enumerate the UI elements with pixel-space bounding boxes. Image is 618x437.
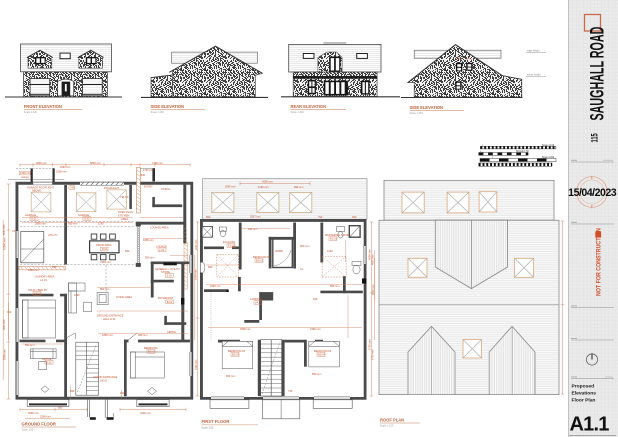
svg-text:990: 990	[7, 310, 12, 314]
svg-text:VELUX: VELUX	[120, 195, 129, 199]
svg-text:LAUNDRY AREA: LAUNDRY AREA	[35, 275, 55, 279]
svg-text:S.01: S.01	[167, 273, 173, 277]
svg-text:990 mm: 990 mm	[294, 185, 303, 189]
svg-text:1790 mm: 1790 mm	[143, 169, 153, 172]
svg-text:4390 mm: 4390 mm	[100, 260, 111, 264]
svg-text:B.01: B.01	[167, 300, 173, 304]
svg-text:8290 mm: 8290 mm	[3, 349, 7, 360]
svg-text:BD.02: BD.02	[256, 259, 264, 263]
svg-text:890 mm: 890 mm	[25, 343, 34, 347]
svg-text:ABOVE: ABOVE	[32, 189, 41, 193]
svg-text:GROUND ENTRANCE: GROUND ENTRANCE	[97, 314, 124, 318]
svg-text:990 mm: 990 mm	[145, 256, 154, 260]
svg-text:2867 mm: 2867 mm	[250, 215, 261, 219]
svg-text:eaves height: eaves height	[527, 74, 541, 77]
svg-text:GE.01: GE.01	[100, 379, 108, 383]
svg-text:3190 mm: 3190 mm	[140, 411, 151, 415]
svg-text:990 mm: 990 mm	[248, 227, 257, 231]
svg-text:Scale 1:100: Scale 1:100	[24, 111, 38, 114]
svg-text:UT: UT	[12, 229, 16, 233]
svg-text:6790 mm: 6790 mm	[372, 350, 375, 360]
svg-text:790: 790	[318, 215, 323, 219]
svg-text:L.01: L.01	[159, 248, 165, 252]
svg-text:BEDROOM 04: BEDROOM 04	[314, 349, 332, 353]
svg-text:4590 mm: 4590 mm	[262, 180, 273, 184]
svg-text:Floor Plan: Floor Plan	[572, 398, 596, 404]
svg-text:ES.01: ES.01	[330, 237, 338, 241]
svg-text:A1.1: A1.1	[570, 414, 610, 436]
svg-text:2290 mm: 2290 mm	[195, 240, 198, 250]
svg-text:890: 890	[206, 215, 211, 219]
svg-text:890: 890	[70, 389, 75, 393]
svg-text:BEDROOM 02: BEDROOM 02	[253, 255, 271, 259]
svg-text:3190 mm: 3190 mm	[195, 360, 198, 370]
svg-text:2090 mm: 2090 mm	[56, 170, 67, 174]
svg-text:BD.04: BD.04	[318, 353, 326, 357]
svg-text:NOT FOR CONSTRUCTION: NOT FOR CONSTRUCTION	[595, 228, 603, 296]
svg-text:SIDE ELEVATION: SIDE ELEVATION	[410, 105, 444, 110]
svg-text:DINING AREA: DINING AREA	[96, 244, 112, 247]
svg-text:1890 mm: 1890 mm	[28, 268, 39, 272]
svg-text:GROUND FLOOR: GROUND FLOOR	[22, 421, 56, 426]
svg-text:GARAGE: GARAGE	[78, 213, 89, 217]
svg-text:GRAND ENTRANCE: GRAND ENTRANCE	[93, 375, 118, 379]
svg-text:HALL H.01: HALL H.01	[103, 317, 116, 321]
svg-text:WARD: WARD	[275, 249, 283, 253]
svg-text:15/04/2023: 15/04/2023	[568, 187, 617, 199]
svg-text:1190: 1190	[74, 293, 80, 297]
svg-text:4790 mm: 4790 mm	[152, 161, 163, 165]
svg-text:990: 990	[52, 265, 57, 269]
svg-text:5890 mm: 5890 mm	[90, 161, 101, 165]
svg-text:790: 790	[288, 389, 293, 393]
svg-text:Scale 1:100: Scale 1:100	[380, 425, 394, 428]
svg-text:MASTER EN-SUITE: MASTER EN-SUITE	[325, 233, 349, 237]
svg-text:SAUGHALL ROAD: SAUGHALL ROAD	[587, 27, 608, 121]
svg-text:690: 690	[313, 297, 318, 301]
svg-text:3890 mm: 3890 mm	[36, 161, 47, 165]
svg-text:LOUNGE AREA: LOUNGE AREA	[150, 226, 169, 230]
svg-text:LA.01: LA.01	[255, 301, 262, 305]
svg-text:EN-SUITE: EN-SUITE	[223, 240, 235, 244]
svg-text:ridge height: ridge height	[527, 50, 540, 53]
svg-text:115: 115	[589, 133, 600, 143]
svg-text:SN.01: SN.01	[34, 292, 42, 296]
svg-text:LA.01: LA.01	[40, 278, 47, 282]
svg-text:990: 990	[352, 215, 357, 219]
svg-text:Scale 1:50: Scale 1:50	[22, 429, 34, 432]
svg-text:Scale 1:100: Scale 1:100	[410, 112, 424, 115]
svg-text:6390 mm: 6390 mm	[194, 269, 198, 280]
svg-text:OPEN PLAN: OPEN PLAN	[118, 210, 133, 214]
svg-text:1090 mm: 1090 mm	[20, 171, 31, 175]
svg-text:UTILITY: UTILITY	[48, 233, 58, 237]
svg-text:BD.03: BD.03	[232, 353, 240, 357]
svg-text:LANDING: LANDING	[250, 297, 262, 301]
svg-text:KITCHEN: KITCHEN	[118, 214, 130, 218]
svg-text:D.01: D.01	[102, 248, 108, 251]
svg-text:990 mm: 990 mm	[300, 244, 309, 248]
svg-text:990 mm: 990 mm	[226, 374, 235, 378]
svg-text:1190: 1190	[327, 249, 333, 253]
svg-text:990: 990	[120, 391, 125, 395]
svg-text:ROOFLIGHT: ROOFLIGHT	[104, 186, 120, 190]
svg-text:BD.01: BD.01	[148, 350, 156, 354]
svg-text:2890 mm: 2890 mm	[3, 320, 6, 330]
svg-text:2090 mm: 2090 mm	[225, 186, 235, 189]
svg-text:BEDROOM 03: BEDROOM 03	[228, 349, 246, 353]
svg-text:6790 mm: 6790 mm	[368, 339, 372, 350]
svg-text:1190 mm: 1190 mm	[258, 185, 269, 189]
svg-text:890 mm: 890 mm	[312, 372, 321, 376]
svg-text:690: 690	[125, 249, 130, 253]
svg-text:2090 mm: 2090 mm	[60, 166, 70, 169]
svg-text:BATHROOM: BATHROOM	[158, 296, 173, 300]
svg-text:ROOF PLAN: ROOF PLAN	[380, 418, 404, 423]
svg-text:4690 mm: 4690 mm	[372, 255, 375, 265]
svg-text:AIRING: AIRING	[167, 330, 176, 334]
svg-text:LIVING AREA: LIVING AREA	[116, 295, 132, 299]
svg-text:PORCH: PORCH	[161, 187, 170, 191]
svg-text:6390 mm: 6390 mm	[371, 284, 375, 295]
svg-text:4590 mm: 4590 mm	[3, 225, 6, 235]
svg-text:ENTRY: ENTRY	[144, 185, 153, 189]
svg-text:2590 mm: 2590 mm	[28, 411, 39, 415]
svg-text:Elevations: Elevations	[572, 391, 597, 397]
svg-text:G.02: G.02	[84, 217, 90, 221]
svg-text:FRONT ELEVATION: FRONT ELEVATION	[24, 104, 62, 109]
svg-text:FIRST FLOOR: FIRST FLOOR	[202, 419, 230, 424]
svg-text:740: 740	[70, 186, 75, 190]
svg-text:Proposed: Proposed	[572, 384, 595, 390]
svg-text:890: 890	[141, 173, 146, 177]
svg-text:REAR ELEVATION: REAR ELEVATION	[291, 104, 327, 109]
svg-text:890: 890	[208, 265, 213, 269]
svg-text:G.01: G.01	[31, 217, 37, 221]
svg-text:2590 mm: 2590 mm	[40, 415, 51, 419]
svg-text:Scale 1:100: Scale 1:100	[291, 111, 305, 114]
svg-text:CL: CL	[300, 267, 304, 271]
svg-text:10990 mm: 10990 mm	[3, 238, 7, 250]
svg-text:890: 890	[58, 406, 63, 410]
svg-text:GARAGE: GARAGE	[25, 213, 36, 217]
svg-text:Scale 1:50: Scale 1:50	[202, 427, 214, 430]
svg-text:Scale 1:100: Scale 1:100	[151, 111, 165, 114]
svg-text:canopy: canopy	[21, 176, 30, 179]
svg-text:SIDE ELEVATION: SIDE ELEVATION	[151, 104, 185, 109]
svg-text:ES.02: ES.02	[228, 244, 236, 248]
